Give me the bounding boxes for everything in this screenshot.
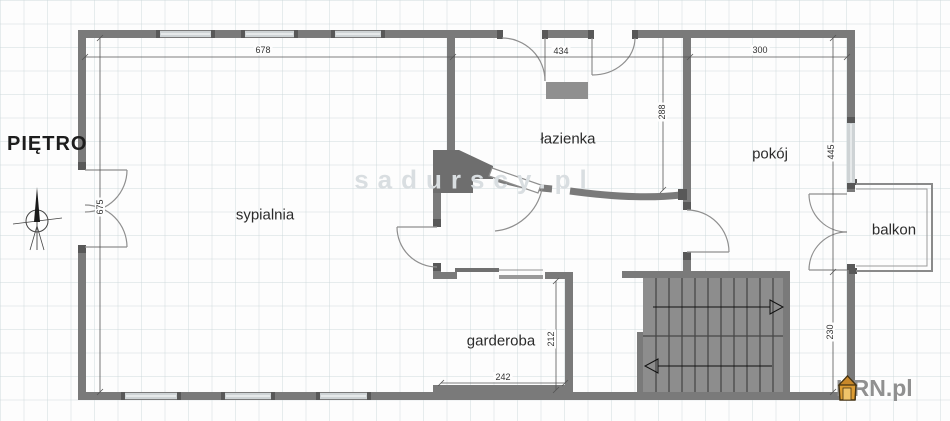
dimension-stair-hall-height: 230 (825, 322, 835, 341)
watermark: sadurscy.pl (354, 165, 596, 196)
dimension-lazienka-width: 434 (551, 46, 570, 56)
room-label-pokoj: pokój (752, 146, 788, 163)
dimension-garderoba-width: 242 (493, 372, 512, 382)
dimension-sypialnia-width: 678 (253, 45, 272, 55)
floor-title: PIĘTRO (7, 133, 87, 156)
sliding-door (455, 268, 543, 279)
floorplan-canvas: PIĘTRO sypialnia łazienka pokój balkon g… (0, 0, 950, 421)
dimension-lazienka-height: 288 (657, 102, 667, 121)
floorplan-drawing (0, 0, 950, 421)
house-icon (836, 375, 859, 402)
room-label-garderoba: garderoba (467, 333, 535, 350)
dimension-garderoba-height: 212 (546, 329, 556, 348)
dimension-pokoj-width: 300 (750, 45, 769, 55)
krn-logo: KRN.pl (836, 375, 913, 401)
north-arrow-icon (13, 187, 62, 250)
room-label-lazienka: łazienka (540, 131, 595, 148)
dimension-left-wall-height: 675 (95, 197, 105, 216)
bathroom-fixture (546, 82, 588, 99)
stairs (637, 278, 783, 392)
dimension-pokoj-height: 445 (826, 142, 836, 161)
room-label-balkon: balkon (872, 222, 916, 239)
room-label-sypialnia: sypialnia (236, 207, 294, 224)
